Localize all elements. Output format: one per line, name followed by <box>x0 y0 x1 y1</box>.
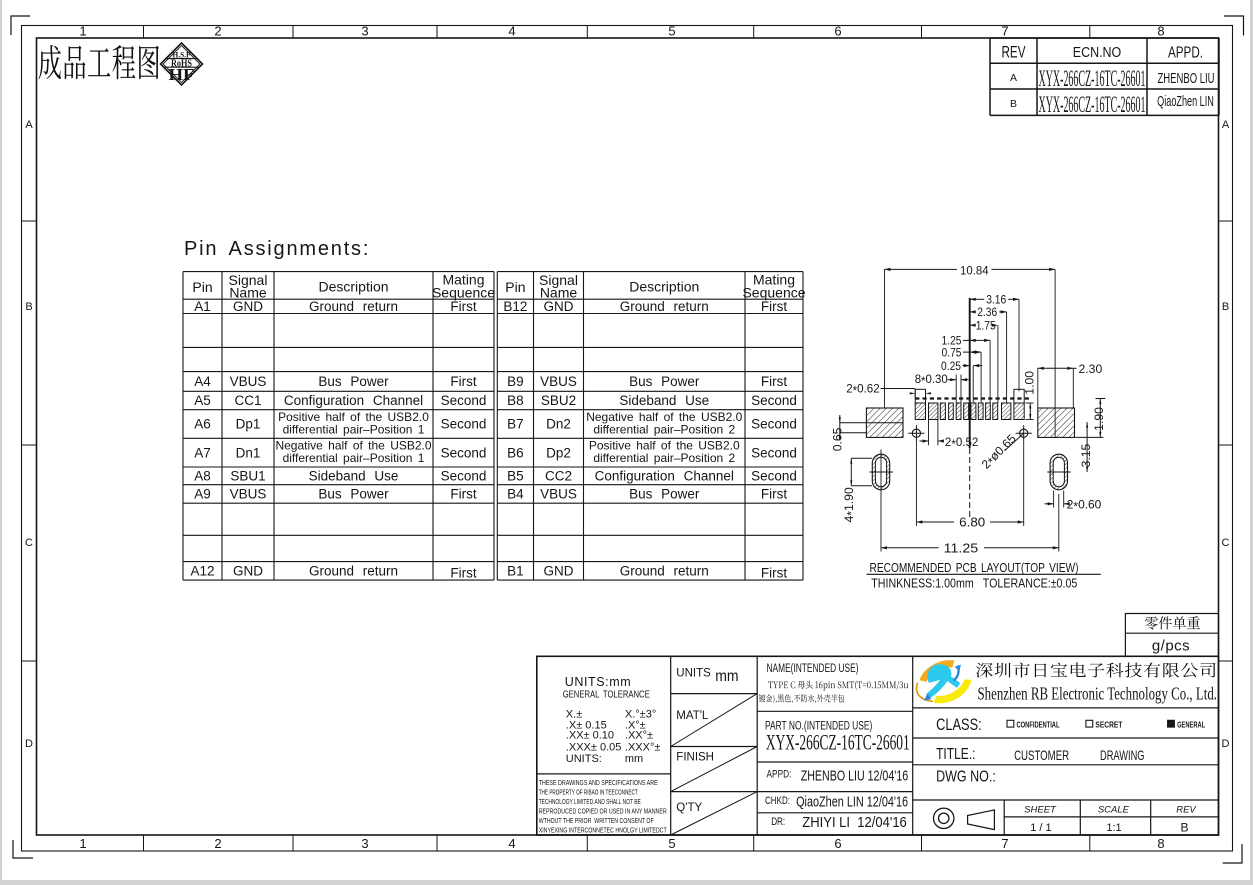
svg-text:GENERAL: GENERAL <box>1177 720 1205 730</box>
svg-text:B: B <box>1010 98 1017 110</box>
svg-text:5: 5 <box>668 24 675 39</box>
svg-text:NAME(INTENDED USE): NAME(INTENDED USE) <box>767 663 859 675</box>
svg-text:Dn1: Dn1 <box>236 445 261 460</box>
svg-text:XINYEXING INTERCONNETEC HNOLGY: XINYEXING INTERCONNETEC HNOLGY LIMITEDCT <box>539 826 667 835</box>
svg-text:TITLE.:: TITLE.: <box>936 746 975 763</box>
svg-text:Sideband Use: Sideband Use <box>309 469 399 484</box>
svg-text:VBUS: VBUS <box>230 374 267 389</box>
svg-text:GND: GND <box>233 564 263 579</box>
svg-text:SHEET: SHEET <box>1024 805 1057 816</box>
svg-text:VBUS: VBUS <box>540 487 577 502</box>
svg-text:XYX-266CZ-16TC-26601: XYX-266CZ-16TC-26601 <box>1039 92 1146 117</box>
svg-text:QiaoZhen LIN: QiaoZhen LIN <box>1157 94 1214 110</box>
svg-text:10.84: 10.84 <box>960 264 989 278</box>
svg-text:DWG NO.:: DWG NO.: <box>936 769 996 786</box>
svg-text:ECN.NO: ECN.NO <box>1073 44 1122 61</box>
svg-text:GND: GND <box>233 299 263 314</box>
svg-text:A: A <box>1010 72 1017 84</box>
svg-text:SECRET: SECRET <box>1095 720 1123 730</box>
svg-text:0.75: 0.75 <box>942 345 962 359</box>
svg-text:0.25: 0.25 <box>941 359 961 373</box>
svg-text:1: 1 <box>79 836 86 851</box>
svg-text:Dn2: Dn2 <box>546 417 571 432</box>
svg-text:1.00: 1.00 <box>1022 371 1036 395</box>
svg-text:ZHIYI LI 12/04'16: ZHIYI LI 12/04'16 <box>802 814 907 831</box>
svg-text:B: B <box>1180 820 1188 834</box>
svg-text:.XXX°±: .XXX°± <box>625 741 661 753</box>
svg-text:3: 3 <box>361 836 368 851</box>
svg-text:Ground return: Ground return <box>620 299 709 314</box>
svg-text:REPRODUCED COPIED OR USED IN A: REPRODUCED COPIED OR USED IN ANY MANNER <box>539 806 667 815</box>
svg-text:A12: A12 <box>190 564 214 579</box>
svg-text:4: 4 <box>508 836 515 851</box>
svg-text:HF: HF <box>169 65 195 84</box>
svg-text:mm: mm <box>715 668 738 685</box>
svg-text:First: First <box>450 299 476 314</box>
svg-text:SBU2: SBU2 <box>541 393 576 408</box>
svg-text:Pin: Pin <box>192 279 212 295</box>
svg-text:Second: Second <box>751 469 797 484</box>
svg-text:CC1: CC1 <box>234 393 261 408</box>
svg-text:Configuration Channel: Configuration Channel <box>284 393 423 408</box>
svg-text:2.30: 2.30 <box>1079 362 1103 376</box>
svg-text:C: C <box>25 537 33 549</box>
svg-text:Second: Second <box>751 445 797 460</box>
svg-text:THESE DRAWINGS AND SPECIFICATI: THESE DRAWINGS AND SPECIFICATIONS ARE <box>539 778 658 787</box>
svg-text:VBUS: VBUS <box>540 374 577 389</box>
svg-text:.XXX± 0.05: .XXX± 0.05 <box>566 741 622 753</box>
svg-text:.XX± 0.10: .XX± 0.10 <box>566 730 614 742</box>
svg-text:.XX°±: .XX°± <box>625 730 653 742</box>
svg-text:4*1.90: 4*1.90 <box>842 487 858 522</box>
svg-text:First: First <box>450 565 476 580</box>
svg-text:First: First <box>761 487 787 502</box>
svg-text:Bus Power: Bus Power <box>629 374 700 389</box>
svg-text:1.90: 1.90 <box>1092 407 1106 431</box>
svg-text:0.65: 0.65 <box>831 427 845 451</box>
svg-text:2*0.60: 2*0.60 <box>1067 498 1102 514</box>
svg-text:A: A <box>25 119 33 131</box>
svg-text:B: B <box>25 301 32 313</box>
svg-text:Configuration Channel: Configuration Channel <box>595 469 734 484</box>
svg-text:2*0.62: 2*0.62 <box>846 381 880 397</box>
svg-text:Shenzhen RB Electronic Technol: Shenzhen RB Electronic Technology Co., L… <box>978 684 1218 704</box>
svg-text:First: First <box>761 299 787 314</box>
svg-text:B8: B8 <box>507 393 524 408</box>
svg-text:APPD.: APPD. <box>1168 44 1203 61</box>
svg-text:Q'TY: Q'TY <box>676 802 702 814</box>
svg-text:A6: A6 <box>194 417 211 432</box>
svg-text:B7: B7 <box>507 417 524 432</box>
svg-text:TECHNOLOGY LIMITED.AND SHALL N: TECHNOLOGY LIMITED.AND SHALL NOT BE <box>539 797 641 806</box>
svg-text:A9: A9 <box>194 487 211 502</box>
svg-text:8: 8 <box>1157 836 1164 851</box>
svg-text:ZHENBO LIU: ZHENBO LIU <box>1158 71 1215 87</box>
svg-text:CLASS:: CLASS: <box>936 715 982 734</box>
svg-text:2.36: 2.36 <box>977 305 997 319</box>
svg-text:THE PROPERTY OF RIBAO IN TEECO: THE PROPERTY OF RIBAO IN TEECONNECT <box>539 787 638 796</box>
svg-text:B9: B9 <box>507 374 524 389</box>
svg-text:D: D <box>1222 738 1230 750</box>
svg-text:1:1: 1:1 <box>1106 822 1121 834</box>
svg-text:Description: Description <box>629 279 699 295</box>
svg-text:GND: GND <box>544 299 574 314</box>
svg-text:differential pair–Position 2: differential pair–Position 2 <box>593 451 735 465</box>
svg-text:differential pair–Position 1: differential pair–Position 1 <box>283 422 425 436</box>
svg-text:C: C <box>1222 537 1230 549</box>
svg-text:SBU1: SBU1 <box>230 469 265 484</box>
svg-text:B4: B4 <box>507 487 524 502</box>
svg-text:Dp2: Dp2 <box>546 445 571 460</box>
svg-text:XYX-266CZ-16TC-26601: XYX-266CZ-16TC-26601 <box>1039 66 1146 91</box>
svg-text:differential pair–Position 2: differential pair–Position 2 <box>593 422 735 436</box>
svg-text:B: B <box>1222 301 1229 313</box>
svg-text:A7: A7 <box>194 445 211 460</box>
svg-text:Second: Second <box>751 417 797 432</box>
svg-text:CC2: CC2 <box>545 469 572 484</box>
svg-text:Second: Second <box>751 393 797 408</box>
svg-text:GENERAL TOLERANCE: GENERAL TOLERANCE <box>563 688 650 700</box>
svg-text:VBUS: VBUS <box>230 487 267 502</box>
svg-text:UNITS:: UNITS: <box>566 753 602 765</box>
svg-text:6: 6 <box>834 836 841 851</box>
svg-text:THINKNESS:1.00mm TOLERANCE:±0: THINKNESS:1.00mm TOLERANCE:±0.05 <box>871 576 1077 591</box>
svg-text:Second: Second <box>441 417 487 432</box>
svg-text:CONFIDENTIAL: CONFIDENTIAL <box>1017 720 1060 730</box>
svg-text:First: First <box>450 374 476 389</box>
svg-text:CHKD:: CHKD: <box>765 795 790 807</box>
svg-text:REV: REV <box>1176 805 1197 816</box>
svg-text:B6: B6 <box>507 445 524 460</box>
svg-text:Sideband Use: Sideband Use <box>619 393 709 408</box>
svg-text:2: 2 <box>214 24 221 39</box>
svg-text:8*0.30: 8*0.30 <box>915 372 948 388</box>
svg-text:Pin Assignments:: Pin Assignments: <box>184 238 370 260</box>
svg-text:differential pair–Position 1: differential pair–Position 1 <box>283 451 425 465</box>
svg-text:UNITS:mm: UNITS:mm <box>565 675 632 689</box>
svg-text:MAT'L: MAT'L <box>676 710 709 722</box>
svg-text:DRAWING: DRAWING <box>1100 747 1145 763</box>
svg-text:XYX-266CZ-16TC-26601: XYX-266CZ-16TC-26601 <box>766 730 910 755</box>
svg-text:1.75: 1.75 <box>976 319 996 333</box>
svg-text:5: 5 <box>668 836 675 851</box>
svg-text:2*0.52: 2*0.52 <box>945 435 979 451</box>
svg-text:Second: Second <box>441 445 487 460</box>
svg-text:Bus Power: Bus Power <box>629 487 700 502</box>
svg-text:1: 1 <box>79 24 86 39</box>
svg-text:UNITS: UNITS <box>676 668 711 680</box>
svg-text:mm: mm <box>625 753 643 765</box>
svg-text:DR:: DR: <box>771 816 785 828</box>
svg-text:SCALE: SCALE <box>1098 805 1130 816</box>
svg-text:B12: B12 <box>503 299 527 314</box>
svg-text:REV: REV <box>1002 43 1026 61</box>
svg-text:2: 2 <box>214 836 221 851</box>
svg-text:QiaoZhen LIN 12/04'16: QiaoZhen LIN 12/04'16 <box>796 793 908 810</box>
svg-text:Ground return: Ground return <box>309 299 398 314</box>
svg-text:B1: B1 <box>507 564 524 579</box>
svg-text:D: D <box>25 738 33 750</box>
svg-text:3.15: 3.15 <box>1079 443 1093 467</box>
svg-text:A4: A4 <box>194 374 211 389</box>
svg-text:Second: Second <box>441 393 487 408</box>
svg-text:7: 7 <box>1001 836 1008 851</box>
svg-text:A1: A1 <box>194 299 211 314</box>
svg-text:Dp1: Dp1 <box>236 417 261 432</box>
svg-text:APPD:: APPD: <box>767 769 792 781</box>
svg-text:Ground return: Ground return <box>309 564 398 579</box>
svg-text:Ground return: Ground return <box>620 564 709 579</box>
svg-text:4: 4 <box>508 24 515 39</box>
svg-text:A8: A8 <box>194 469 211 484</box>
svg-text:A5: A5 <box>194 393 211 408</box>
svg-text:CUSTOMER: CUSTOMER <box>1014 747 1069 763</box>
svg-text:B5: B5 <box>507 469 524 484</box>
svg-text:1 / 1: 1 / 1 <box>1030 822 1051 834</box>
svg-text:Bus Power: Bus Power <box>318 374 389 389</box>
svg-text:FINISH: FINISH <box>676 752 714 764</box>
svg-text:6.80: 6.80 <box>959 516 985 530</box>
svg-text:g/pcs: g/pcs <box>1152 638 1190 655</box>
svg-text:Bus Power: Bus Power <box>318 487 389 502</box>
svg-text:Second: Second <box>441 469 487 484</box>
svg-text:First: First <box>761 374 787 389</box>
svg-text:7: 7 <box>1001 24 1008 39</box>
svg-text:RECOMMENDED PCB LAYOUT(TOP VIE: RECOMMENDED PCB LAYOUT(TOP VIEW) <box>870 560 1079 575</box>
svg-text:3: 3 <box>361 24 368 39</box>
svg-text:GND: GND <box>544 564 574 579</box>
svg-text:First: First <box>450 487 476 502</box>
svg-text:Pin: Pin <box>505 279 525 295</box>
svg-text:Description: Description <box>318 279 388 295</box>
svg-text:11.25: 11.25 <box>944 541 979 555</box>
svg-text:ZHENBO LIU 12/04'16: ZHENBO LIU 12/04'16 <box>801 768 909 785</box>
svg-text:First: First <box>761 565 787 580</box>
svg-text:8: 8 <box>1157 24 1164 39</box>
svg-text:A: A <box>1222 119 1230 131</box>
svg-text:WTHOUT THE PRIOR WRITTEN CONS: WTHOUT THE PRIOR WRITTEN CONSENT OF <box>539 816 654 825</box>
svg-text:6: 6 <box>834 24 841 39</box>
